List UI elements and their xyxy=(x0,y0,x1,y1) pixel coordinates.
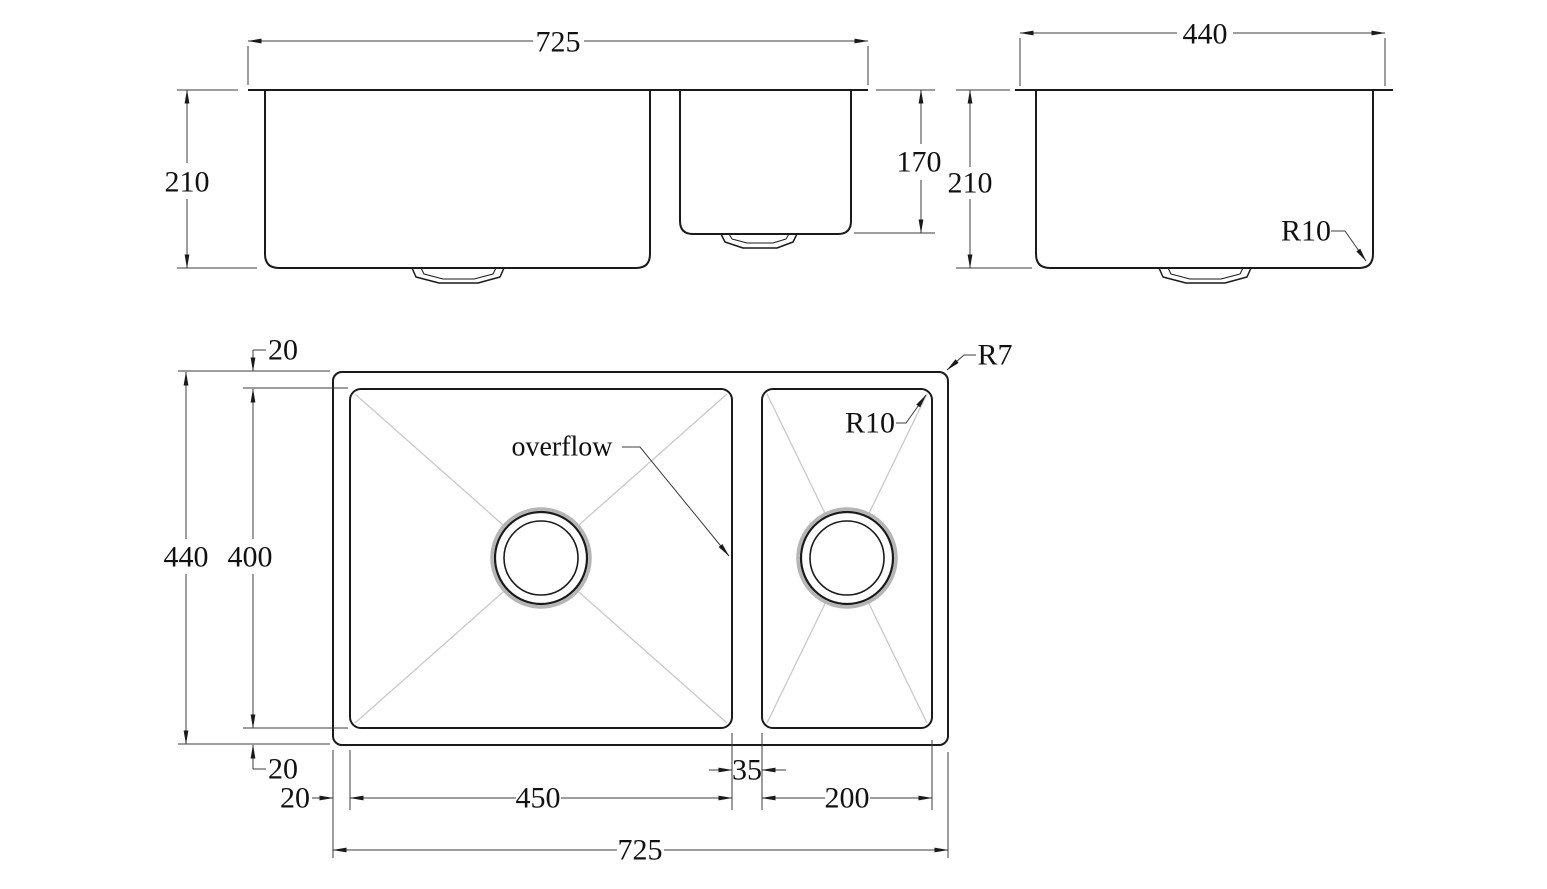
dim-front-depth: 210 xyxy=(165,90,258,268)
side-corner-radius-label: R10 xyxy=(1281,215,1331,248)
dim-plan-rim-bottom: 20 xyxy=(253,745,298,786)
dim-front-small-bowl-depth: 170 xyxy=(854,90,942,233)
bowl-corner-radius-callout: R10 xyxy=(845,395,926,440)
front-main-drain xyxy=(412,268,504,283)
dim-front-width: 725 xyxy=(248,26,868,86)
dim-front-small-bowl-depth-value: 170 xyxy=(897,146,942,179)
dim-plan-small-bowl-width: 200 xyxy=(762,782,932,815)
dim-side-depth: 210 xyxy=(948,90,1033,268)
side-corner-radius-callout: R10 xyxy=(1281,215,1366,262)
side-drain-inner xyxy=(1168,268,1243,279)
dim-plan-overall-depth-value: 440 xyxy=(164,541,209,574)
dim-plan-rim-top-value: 20 xyxy=(268,334,298,367)
dim-front-depth-value: 210 xyxy=(165,166,210,199)
overflow-leader xyxy=(622,447,729,556)
dim-plan-rim-left: 20 xyxy=(280,782,333,815)
dim-plan-main-bowl-width-value: 450 xyxy=(516,782,561,815)
front-main-drain-inner xyxy=(421,268,496,279)
dim-plan-small-bowl-width-value: 200 xyxy=(825,782,870,815)
dim-plan-bowl-depth-value: 400 xyxy=(228,541,273,574)
side-corner-radius-leader xyxy=(1331,231,1366,261)
side-elevation-view: 440 210 R10 xyxy=(948,18,1394,284)
dim-side-width: 440 xyxy=(1020,18,1385,87)
bowl-corner-radius-leader xyxy=(896,395,926,423)
sink-technical-drawing: 725 210 170 440 xyxy=(0,0,1547,889)
front-elevation-view: 725 210 170 xyxy=(165,26,942,284)
dim-plan-divider-width: 35 xyxy=(709,754,786,787)
dim-plan-divider-width-value: 35 xyxy=(732,754,762,787)
dim-plan-rim-left-value: 20 xyxy=(280,782,310,815)
dim-plan-overall-width-value: 725 xyxy=(618,834,663,867)
outer-corner-radius-callout: R7 xyxy=(947,339,1013,372)
dim-side-width-value: 440 xyxy=(1183,18,1228,51)
dim-plan-main-bowl-width: 450 xyxy=(350,782,732,815)
outer-corner-radius-leader xyxy=(947,355,976,370)
dim-plan-overall-width: 725 xyxy=(333,834,948,867)
front-small-bowl-outline xyxy=(680,90,851,234)
dim-side-depth-value: 210 xyxy=(948,167,993,200)
drawing-canvas: 725 210 170 440 xyxy=(0,0,1547,889)
plan-view: overflow R10 R7 440 400 xyxy=(164,334,1013,867)
dim-plan-rim-top: 20 xyxy=(253,334,298,372)
side-drain xyxy=(1159,268,1251,283)
bowl-corner-radius-label: R10 xyxy=(845,407,895,440)
front-small-drain xyxy=(721,234,797,248)
dim-front-width-value: 725 xyxy=(536,26,581,59)
dim-plan-bowl-depth: 400 xyxy=(228,388,349,728)
overflow-label: overflow xyxy=(511,432,613,463)
front-main-bowl-outline xyxy=(265,90,650,268)
front-small-drain-inner xyxy=(729,234,789,243)
plan-small-drain xyxy=(798,509,896,607)
plan-main-drain xyxy=(492,509,590,607)
outer-corner-radius-label: R7 xyxy=(977,339,1012,372)
